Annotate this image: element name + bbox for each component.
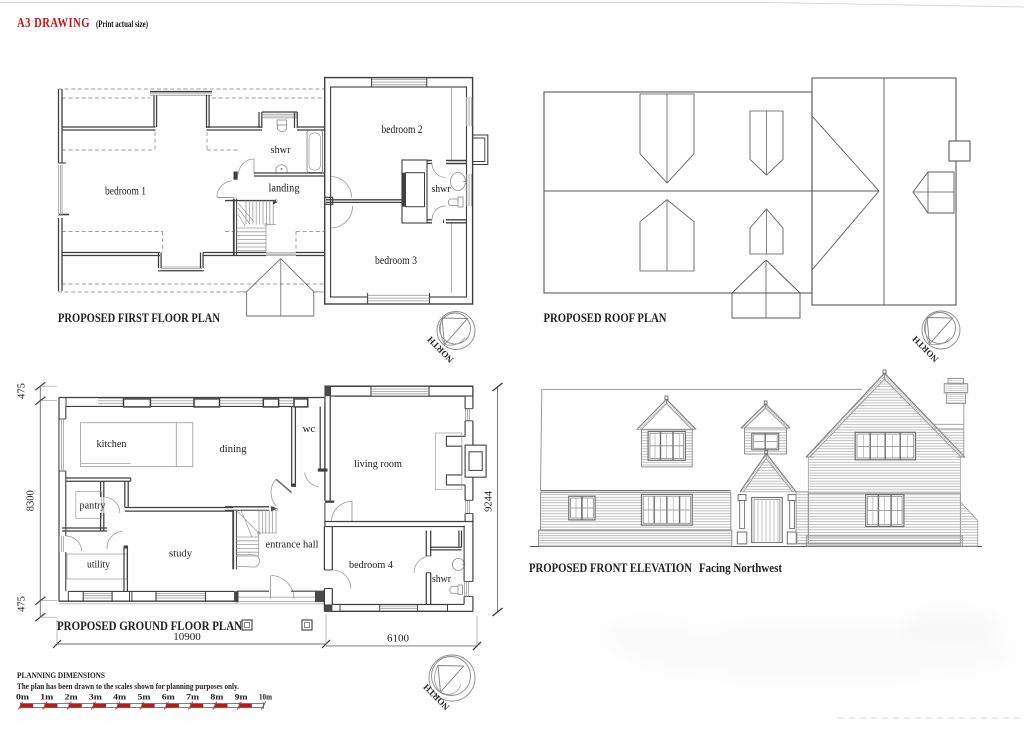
svg-text:bedroom 1: bedroom 1 [105, 186, 146, 198]
svg-text:shwr: shwr [432, 184, 451, 195]
svg-text:6100: 6100 [387, 633, 410, 645]
svg-text:(Print actual size): (Print actual size) [96, 19, 148, 30]
svg-text:bedroom 2: bedroom 2 [382, 124, 423, 136]
svg-text:9244: 9244 [484, 490, 495, 512]
svg-text:8m: 8m [210, 692, 223, 702]
svg-text:PROPOSED FIRST FLOOR PLAN: PROPOSED FIRST FLOOR PLAN [58, 311, 220, 325]
svg-text:2m: 2m [65, 692, 78, 702]
svg-text:study: study [169, 548, 192, 560]
svg-text:PROPOSED FRONT ELEVATION: PROPOSED FRONT ELEVATION [529, 561, 692, 575]
svg-text:The plan has been drawn to the: The plan has been drawn to the scales sh… [17, 681, 239, 691]
svg-text:Facing Northwest: Facing Northwest [699, 561, 782, 575]
svg-text:7m: 7m [186, 692, 199, 702]
svg-text:10m: 10m [259, 692, 272, 702]
svg-text:shwr: shwr [432, 574, 451, 585]
svg-text:475: 475 [17, 383, 28, 399]
svg-text:475: 475 [17, 596, 28, 612]
svg-text:6m: 6m [162, 692, 175, 702]
svg-text:entrance hall: entrance hall [266, 539, 319, 551]
svg-text:0m: 0m [16, 692, 29, 702]
svg-text:bedroom 4: bedroom 4 [349, 559, 393, 571]
svg-text:8300: 8300 [25, 490, 36, 511]
svg-text:A3 DRAWING: A3 DRAWING [17, 15, 90, 30]
svg-text:9m: 9m [235, 692, 248, 702]
svg-text:5m: 5m [138, 692, 151, 702]
svg-text:shwr: shwr [271, 144, 291, 156]
svg-text:wc: wc [303, 423, 316, 435]
svg-text:PROPOSED GROUND FLOOR PLAN: PROPOSED GROUND FLOOR PLAN [57, 619, 242, 633]
svg-text:dining: dining [220, 443, 247, 455]
svg-text:3m: 3m [89, 692, 102, 702]
svg-text:kitchen: kitchen [97, 438, 127, 450]
svg-text:utility: utility [87, 559, 111, 571]
svg-text:landing: landing [269, 183, 300, 195]
svg-text:4m: 4m [113, 692, 126, 702]
svg-text:pantry: pantry [80, 500, 107, 512]
svg-text:bedroom 3: bedroom 3 [375, 255, 417, 267]
svg-text:PLANNING DIMENSIONS: PLANNING DIMENSIONS [17, 670, 105, 680]
svg-text:1m: 1m [40, 692, 53, 702]
svg-text:PROPOSED ROOF PLAN: PROPOSED ROOF PLAN [544, 311, 667, 325]
svg-text:living room: living room [354, 458, 402, 470]
